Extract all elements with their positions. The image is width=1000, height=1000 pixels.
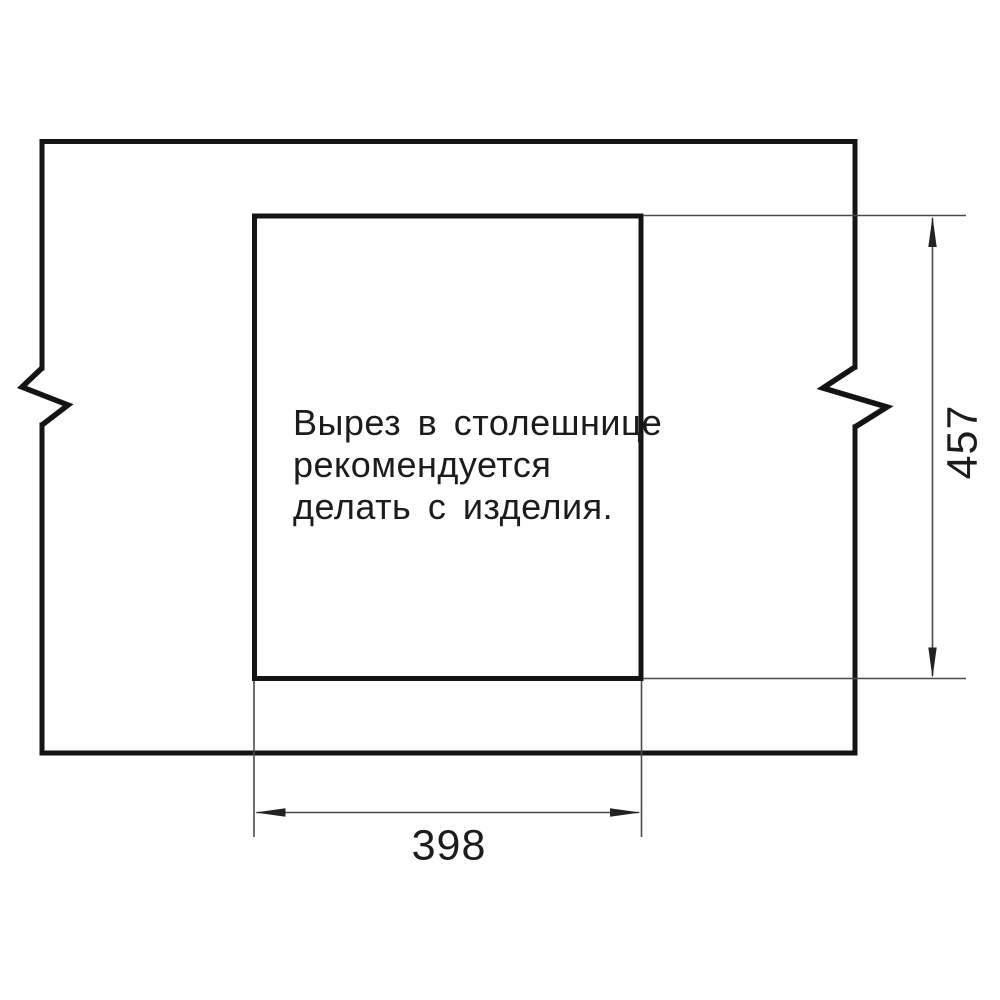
arrowhead-up-icon — [928, 217, 936, 248]
cutout-note-line-2: рекомендуется — [293, 444, 662, 486]
break-mark-left-icon — [22, 368, 68, 425]
height-dimension-label: 457 — [939, 405, 988, 480]
break-mark-right-icon — [823, 367, 887, 427]
arrowhead-left-icon — [255, 808, 286, 816]
arrowhead-right-icon — [610, 808, 641, 816]
arrowhead-down-icon — [928, 648, 936, 679]
cutout-note-line-3: делать с изделия. — [293, 486, 662, 528]
countertop-cutout-drawing: Вырез в столешнице рекомендуется делать … — [0, 0, 1000, 1000]
cutout-note: Вырез в столешнице рекомендуется делать … — [293, 402, 662, 528]
cutout-note-line-1: Вырез в столешнице — [293, 402, 662, 444]
width-dimension-label: 398 — [412, 822, 487, 871]
